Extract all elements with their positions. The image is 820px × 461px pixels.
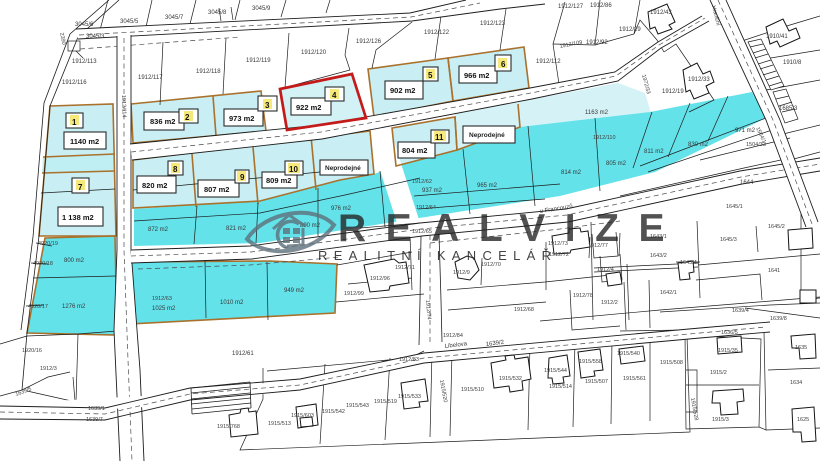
svg-text:1639/7: 1639/7 — [86, 417, 103, 423]
svg-text:1912/110: 1912/110 — [593, 135, 616, 141]
svg-text:1915/533: 1915/533 — [398, 394, 421, 400]
svg-text:1912/61: 1912/61 — [232, 351, 254, 357]
svg-text:3045/7: 3045/7 — [165, 15, 184, 21]
svg-text:1634: 1634 — [790, 380, 802, 386]
svg-text:1912/113: 1912/113 — [72, 59, 97, 65]
svg-text:1912/126: 1912/126 — [356, 39, 382, 45]
svg-text:7: 7 — [78, 183, 83, 192]
svg-text:1915/514: 1915/514 — [549, 384, 572, 390]
svg-text:1645/1: 1645/1 — [726, 204, 743, 210]
svg-text:1915/561: 1915/561 — [623, 376, 646, 382]
svg-text:804 m2: 804 m2 — [402, 146, 427, 155]
svg-text:3045/6: 3045/6 — [75, 22, 94, 28]
svg-text:1915/540: 1915/540 — [617, 351, 640, 357]
svg-text:6: 6 — [501, 60, 506, 69]
svg-text:1641: 1641 — [768, 268, 780, 274]
svg-text:805 m2: 805 m2 — [606, 161, 627, 167]
svg-text:Neprodejné: Neprodejné — [325, 165, 361, 172]
svg-text:1912/84: 1912/84 — [443, 333, 463, 339]
svg-text:1912/19: 1912/19 — [662, 89, 684, 95]
svg-text:REALITNÍ KANCELÁŘ: REALITNÍ KANCELÁŘ — [318, 248, 557, 263]
svg-text:937 m2: 937 m2 — [422, 188, 443, 194]
svg-text:4920/17: 4920/17 — [28, 304, 48, 310]
svg-text:9: 9 — [240, 173, 245, 182]
svg-text:3: 3 — [265, 101, 270, 110]
svg-text:1915/35: 1915/35 — [718, 348, 738, 354]
svg-text:830 m2: 830 m2 — [688, 142, 709, 148]
svg-text:820 m2: 820 m2 — [142, 181, 167, 190]
svg-text:3045/8: 3045/8 — [208, 10, 227, 16]
svg-text:REALVIZE: REALVIZE — [338, 207, 684, 250]
svg-text:1645/2: 1645/2 — [768, 224, 785, 230]
svg-text:872 m2: 872 m2 — [148, 227, 169, 233]
svg-text:1912/127: 1912/127 — [558, 4, 584, 10]
svg-text:902 m2: 902 m2 — [390, 86, 415, 95]
svg-text:1636/5: 1636/5 — [721, 330, 738, 336]
svg-text:1639/4: 1639/4 — [732, 308, 749, 314]
svg-text:811 m2: 811 m2 — [644, 149, 664, 155]
svg-text:1639/8: 1639/8 — [770, 316, 787, 322]
svg-text:1645/3: 1645/3 — [720, 237, 737, 243]
svg-text:1912/2: 1912/2 — [601, 300, 618, 306]
svg-text:1685/3: 1685/3 — [779, 106, 798, 112]
svg-text:1912/112: 1912/112 — [536, 59, 561, 65]
svg-text:1912/9: 1912/9 — [453, 270, 470, 276]
svg-text:1915/510: 1915/510 — [461, 387, 484, 393]
svg-text:1912/114: 1912/114 — [120, 95, 127, 118]
svg-text:1915/507: 1915/507 — [585, 379, 608, 385]
svg-text:1912/92: 1912/92 — [586, 40, 608, 46]
svg-text:1912/43: 1912/43 — [650, 10, 672, 16]
svg-text:2: 2 — [185, 113, 190, 122]
svg-text:1912/83: 1912/83 — [399, 357, 419, 363]
svg-text:1912/117: 1912/117 — [138, 75, 163, 81]
svg-text:1639/1: 1639/1 — [88, 406, 105, 412]
svg-text:922 m2: 922 m2 — [296, 103, 321, 112]
svg-text:3045/5: 3045/5 — [120, 19, 139, 25]
svg-text:807 m2: 807 m2 — [204, 185, 229, 194]
svg-text:1: 1 — [72, 118, 77, 127]
svg-text:1915/519: 1915/519 — [374, 399, 397, 405]
svg-text:1635: 1635 — [795, 345, 807, 351]
svg-text:1915/603: 1915/603 — [291, 413, 314, 419]
svg-text:1642/1: 1642/1 — [660, 290, 677, 296]
svg-text:1912/86: 1912/86 — [590, 3, 612, 9]
svg-text:1643/2: 1643/2 — [650, 253, 667, 259]
svg-text:1912/63: 1912/63 — [152, 296, 172, 302]
svg-text:1912/62: 1912/62 — [412, 179, 432, 185]
svg-text:Neprodejné: Neprodejné — [469, 132, 505, 139]
svg-text:966 m2: 966 m2 — [464, 71, 489, 80]
svg-text:973 m2: 973 m2 — [229, 114, 254, 123]
svg-text:821 m2: 821 m2 — [226, 226, 247, 232]
svg-text:1912/122: 1912/122 — [424, 30, 450, 36]
svg-text:1276 m2: 1276 m2 — [62, 304, 86, 310]
svg-text:836 m2: 836 m2 — [150, 117, 175, 126]
svg-text:1140 m2: 1140 m2 — [70, 137, 99, 146]
svg-text:1912/78: 1912/78 — [573, 293, 593, 299]
svg-text:1163 m2: 1163 m2 — [585, 110, 609, 116]
svg-text:1915/768: 1915/768 — [217, 424, 240, 430]
svg-text:1644: 1644 — [740, 180, 754, 186]
svg-text:1915/3: 1915/3 — [712, 417, 729, 423]
svg-text:1915/532: 1915/532 — [499, 376, 522, 382]
svg-text:1912/116: 1912/116 — [62, 80, 87, 86]
svg-text:965 m2: 965 m2 — [477, 183, 498, 189]
svg-text:10: 10 — [289, 165, 298, 174]
svg-text:1912/120: 1912/120 — [301, 50, 327, 56]
svg-text:11: 11 — [435, 133, 444, 142]
svg-text:1915/543: 1915/543 — [346, 403, 369, 409]
svg-text:1910/41: 1910/41 — [766, 34, 788, 40]
svg-text:814 m2: 814 m2 — [561, 170, 582, 176]
svg-text:1915/544: 1915/544 — [544, 368, 567, 374]
svg-text:809 m2: 809 m2 — [266, 176, 291, 185]
svg-text:1912/96: 1912/96 — [370, 276, 390, 282]
svg-text:3045/3: 3045/3 — [86, 34, 105, 40]
svg-text:1910/8: 1910/8 — [783, 60, 802, 66]
svg-text:1915/508: 1915/508 — [660, 360, 683, 366]
svg-text:1912/3: 1912/3 — [40, 366, 57, 372]
svg-text:1912/68: 1912/68 — [514, 307, 534, 313]
svg-text:1920/16: 1920/16 — [22, 348, 42, 354]
svg-text:4: 4 — [332, 91, 337, 100]
svg-text:949 m2: 949 m2 — [284, 288, 305, 294]
svg-text:1915/558: 1915/558 — [579, 359, 602, 365]
svg-text:971 m2: 971 m2 — [735, 128, 756, 134]
svg-text:1912/4: 1912/4 — [597, 267, 614, 273]
svg-text:8: 8 — [173, 165, 178, 174]
svg-text:1912/119: 1912/119 — [246, 58, 271, 64]
svg-text:1912/99: 1912/99 — [344, 291, 364, 297]
svg-text:5: 5 — [428, 71, 433, 80]
svg-text:1643/4: 1643/4 — [680, 260, 697, 266]
svg-text:1912/123: 1912/123 — [480, 21, 506, 27]
svg-text:1915/2: 1915/2 — [710, 370, 727, 376]
svg-text:1915/513: 1915/513 — [268, 421, 291, 427]
svg-text:1912/29: 1912/29 — [619, 27, 641, 33]
svg-text:800 m2: 800 m2 — [64, 258, 85, 264]
svg-text:1010 m2: 1010 m2 — [220, 300, 244, 306]
svg-text:1912/33: 1912/33 — [688, 77, 710, 83]
svg-text:1912/118: 1912/118 — [196, 69, 221, 75]
svg-text:1912/71: 1912/71 — [395, 265, 415, 271]
svg-text:1025 m2: 1025 m2 — [152, 306, 176, 312]
svg-text:1915/542: 1915/542 — [322, 409, 345, 415]
svg-text:3045/9: 3045/9 — [252, 6, 271, 12]
svg-text:1625: 1625 — [797, 417, 809, 423]
svg-text:1 138 m2: 1 138 m2 — [62, 213, 94, 222]
